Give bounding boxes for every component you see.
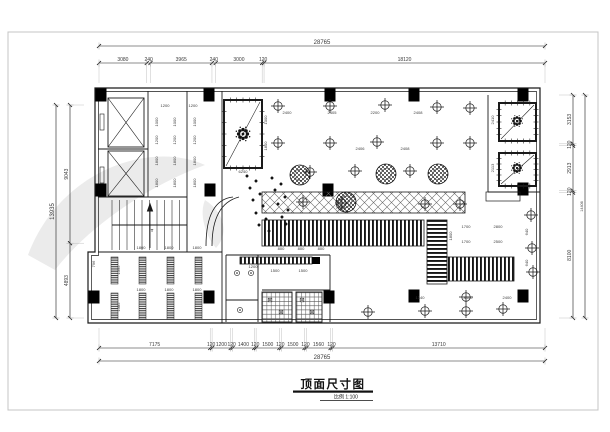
dim-text: 800 bbox=[278, 246, 285, 251]
drawing-scale: 比例 1:100 bbox=[334, 394, 358, 401]
medallion-dot bbox=[519, 173, 520, 174]
dim-text: 1700 bbox=[462, 239, 472, 244]
lamp-dot bbox=[236, 272, 238, 274]
dim-text: 1800 bbox=[165, 245, 175, 250]
ceiling-light-icon bbox=[459, 304, 473, 318]
medallion-petal bbox=[246, 132, 249, 135]
dim-text: 1800 bbox=[448, 231, 453, 241]
dim-text: 120 bbox=[301, 342, 310, 348]
ceiling-light-icon bbox=[271, 136, 285, 150]
column bbox=[96, 89, 107, 102]
dim-text: 120 bbox=[567, 187, 573, 196]
dim-text: 1000 bbox=[263, 115, 268, 125]
medallion-petal bbox=[513, 164, 516, 167]
dim-text: 2400 bbox=[503, 295, 513, 300]
dim-text: 1385 bbox=[116, 302, 121, 312]
medallion-petal bbox=[519, 120, 522, 123]
louver-band bbox=[240, 257, 312, 264]
dim-text: 1340 bbox=[416, 295, 426, 300]
medallion-dot bbox=[519, 126, 520, 127]
medallion-petal bbox=[238, 129, 241, 132]
dim-text: 2400 bbox=[283, 110, 293, 115]
ceiling-medallion bbox=[511, 162, 523, 174]
medallion-petal bbox=[518, 122, 521, 125]
spotlight-icon bbox=[270, 176, 274, 180]
dim-text: 18120 bbox=[398, 57, 412, 63]
medallion-petal bbox=[516, 170, 519, 173]
dim-text: 1200 bbox=[216, 342, 227, 348]
medallion-petal bbox=[516, 123, 519, 126]
dim-text: 1500 bbox=[271, 268, 281, 273]
column bbox=[518, 89, 529, 102]
dim-text: 1800 bbox=[154, 156, 159, 166]
column bbox=[96, 184, 107, 197]
medallion-dot bbox=[511, 170, 512, 171]
medallion-center bbox=[516, 167, 518, 169]
dim-text: 1200 bbox=[154, 135, 159, 145]
lamp-dot bbox=[280, 311, 282, 313]
grid-ceiling-rooms bbox=[234, 270, 322, 322]
hatched-circle-feature bbox=[428, 164, 448, 184]
medallion-dot bbox=[236, 131, 237, 132]
spotlight-icon bbox=[257, 223, 261, 227]
drawing-title: 顶面尺寸图 bbox=[301, 377, 366, 391]
dim-text: 3080 bbox=[117, 57, 128, 63]
dim-text: 120 bbox=[251, 342, 260, 348]
dim-text: 7340 bbox=[336, 205, 346, 210]
medallion-petal bbox=[518, 164, 521, 167]
dim-text: 640 bbox=[524, 259, 529, 266]
spotlight-icon bbox=[254, 179, 258, 183]
dim-text: 120 bbox=[259, 57, 268, 63]
medallion-dot bbox=[519, 115, 520, 116]
ceiling-light-icon bbox=[463, 101, 477, 115]
medallion-dot bbox=[519, 162, 520, 163]
light-trough bbox=[167, 257, 174, 284]
medallion-petal bbox=[237, 132, 240, 135]
medallion-dot bbox=[245, 140, 246, 141]
dim-text: 7175 bbox=[149, 342, 160, 348]
dim-text: 1800 bbox=[193, 287, 203, 292]
medallion-dot bbox=[511, 123, 512, 124]
medallion-dot bbox=[514, 126, 515, 127]
dim-text: 2200 bbox=[371, 110, 381, 115]
dim-text: 796 bbox=[91, 260, 96, 267]
dim-text: 240 bbox=[210, 57, 219, 63]
lamp-dot bbox=[311, 311, 313, 313]
medallion-dot bbox=[522, 170, 523, 171]
dim-text: 1200 bbox=[192, 135, 197, 145]
medallion-petal bbox=[513, 122, 516, 125]
dim-text: 1560 bbox=[313, 342, 324, 348]
medallion-petal bbox=[512, 120, 515, 123]
light-trough-bars bbox=[111, 257, 202, 319]
medallion-petal bbox=[244, 129, 247, 132]
dim-text: 2405 bbox=[328, 110, 338, 115]
light-trough bbox=[195, 257, 202, 284]
medallion-dot bbox=[514, 162, 515, 163]
dim-text: 1200 bbox=[161, 103, 171, 108]
grid-ceiling bbox=[262, 292, 292, 322]
ceiling-light-icon bbox=[463, 136, 477, 150]
medallion-petal bbox=[516, 163, 519, 166]
medallion-dot bbox=[514, 115, 515, 116]
column bbox=[518, 183, 529, 196]
ceiling-light-icon bbox=[361, 305, 375, 319]
medallion-petal bbox=[513, 117, 516, 120]
dim-text: 800 bbox=[298, 246, 305, 251]
medallion-dot bbox=[249, 131, 250, 132]
dim-text: 120 bbox=[327, 342, 336, 348]
column bbox=[518, 290, 529, 303]
ceiling-light-icon bbox=[524, 208, 538, 222]
medallion-dot bbox=[236, 136, 237, 137]
dim-text: 1800 bbox=[137, 245, 147, 250]
medallion-dot bbox=[522, 165, 523, 166]
lamp-dot bbox=[269, 299, 271, 301]
ceiling-light-icon bbox=[323, 136, 337, 150]
spotlight-icon bbox=[273, 188, 277, 192]
dim-text: 2408 bbox=[401, 146, 411, 151]
light-trough bbox=[139, 293, 146, 319]
dim-text: 3000 bbox=[233, 57, 244, 63]
dim-text: 1800 bbox=[172, 156, 177, 166]
dim-text: 1500 bbox=[262, 342, 273, 348]
ceiling-light-icon bbox=[348, 164, 362, 178]
dim-text: 14406 bbox=[580, 201, 584, 212]
dim-text: 1200 bbox=[172, 135, 177, 145]
dim-text: 3965 bbox=[176, 57, 187, 63]
medallion-dot bbox=[511, 118, 512, 119]
medallion-petal bbox=[241, 128, 244, 131]
lattice-band bbox=[262, 192, 465, 213]
title-underline-thick-rule bbox=[293, 391, 373, 393]
medallion-dot bbox=[511, 165, 512, 166]
dim-text: 13935 bbox=[50, 202, 56, 219]
dim-text: 2113 bbox=[490, 163, 495, 172]
ceiling-light-icon bbox=[430, 100, 444, 114]
dim-text: 1000 bbox=[154, 117, 159, 127]
medallion-petal bbox=[241, 137, 244, 140]
medallion-petal bbox=[518, 117, 521, 120]
light-trough bbox=[195, 293, 202, 319]
spotlight-icon bbox=[248, 186, 252, 190]
dim-text: 2408 bbox=[414, 110, 424, 115]
ceiling-light-icon bbox=[378, 98, 392, 112]
ceiling-light-icon bbox=[525, 241, 539, 255]
dim-text: 28765 bbox=[314, 40, 331, 46]
medallion-dot bbox=[522, 118, 523, 119]
dim-text: 1800 bbox=[137, 287, 147, 292]
dim-text: 1800 bbox=[193, 245, 203, 250]
stair-direction-arrow bbox=[148, 204, 153, 211]
dim-text: 1800 bbox=[165, 287, 175, 292]
grid-ceiling bbox=[296, 292, 322, 322]
lamp-dot bbox=[239, 309, 241, 311]
title-block: 顶面尺寸图 比例 1:100 bbox=[293, 377, 373, 401]
line bbox=[501, 155, 534, 184]
dim-text: 1500 bbox=[299, 268, 309, 273]
ceiling-light-icon bbox=[370, 135, 384, 149]
spotlight-icon bbox=[251, 198, 255, 202]
louver-band bbox=[447, 257, 514, 281]
ceiling-light-icon bbox=[403, 164, 417, 178]
spotlight-icon bbox=[254, 211, 258, 215]
dim-text: 2406 bbox=[356, 146, 366, 151]
medallion-petal bbox=[518, 169, 521, 172]
ceiling-light-icon bbox=[430, 136, 444, 150]
spotlight-icon bbox=[280, 215, 284, 219]
dim-text: 1800 bbox=[192, 178, 197, 188]
dim-text: 1800 bbox=[154, 178, 159, 188]
elevator-door bbox=[100, 114, 104, 130]
spotlight-icon bbox=[279, 182, 283, 186]
dim-text: 1800 bbox=[172, 178, 177, 188]
shelf bbox=[486, 192, 520, 201]
dim-text: 6240 bbox=[239, 169, 249, 174]
column bbox=[324, 291, 335, 304]
dim-text: 1000 bbox=[192, 117, 197, 127]
dim-text: 1395 bbox=[116, 265, 121, 275]
medallion-dot bbox=[522, 123, 523, 124]
medallion-dot bbox=[240, 127, 241, 128]
dim-text: 1000 bbox=[172, 117, 177, 127]
dim-text: 640 bbox=[524, 228, 529, 235]
spotlight-icon bbox=[258, 192, 262, 196]
black-box bbox=[312, 257, 320, 264]
dim-text: T bbox=[151, 228, 154, 233]
medallion-petal bbox=[244, 135, 247, 138]
dim-text: 120 bbox=[567, 140, 573, 149]
ceiling-plan-drawing: 2876530802403965240300012018120717512012… bbox=[0, 0, 610, 432]
louver-band bbox=[427, 220, 447, 284]
light-trough bbox=[139, 257, 146, 284]
dim-text: 1200 bbox=[189, 103, 199, 108]
dim-text: 4893 bbox=[64, 275, 70, 286]
medallion-petal bbox=[519, 167, 522, 170]
hatched-circle-feature bbox=[290, 165, 310, 185]
dim-text: 1800 bbox=[263, 141, 268, 151]
medallion-petal bbox=[512, 167, 515, 170]
dim-text: 120 bbox=[227, 342, 236, 348]
dim-text: 1400 bbox=[238, 342, 249, 348]
ceiling-medallion bbox=[511, 115, 523, 127]
dim-text: 2500 bbox=[494, 239, 504, 244]
column bbox=[204, 291, 215, 304]
medallion-center bbox=[516, 120, 518, 122]
medallion-dot bbox=[249, 136, 250, 137]
lamp-dot bbox=[301, 299, 303, 301]
light-trough bbox=[167, 293, 174, 319]
dim-text: 8400 bbox=[464, 295, 474, 300]
dim-text: 2913 bbox=[567, 162, 573, 173]
dim-text: 1200 bbox=[249, 264, 259, 269]
ceiling-light-icon bbox=[418, 304, 432, 318]
dim-text: 120 bbox=[276, 342, 285, 348]
ceiling-medallion bbox=[236, 127, 251, 142]
ceiling-bands bbox=[240, 192, 520, 284]
dim-text: 8100 bbox=[567, 250, 573, 261]
dim-text: 2800 bbox=[494, 224, 504, 229]
medallion-petal bbox=[513, 169, 516, 172]
medallion-dot bbox=[245, 127, 246, 128]
dim-text: 1500 bbox=[287, 342, 298, 348]
dim-text: 1700 bbox=[462, 224, 472, 229]
dim-text: 9043 bbox=[64, 168, 70, 179]
lamp-dot bbox=[250, 272, 252, 274]
column bbox=[409, 89, 420, 102]
medallion-petal bbox=[516, 116, 519, 119]
dim-text: 28765 bbox=[314, 355, 331, 361]
column bbox=[205, 184, 216, 197]
column bbox=[89, 291, 100, 304]
dim-text: 3153 bbox=[567, 114, 573, 125]
medallion-center bbox=[242, 133, 245, 136]
dim-text: 2410 bbox=[490, 115, 495, 125]
spotlight-icon bbox=[245, 174, 249, 178]
hatched-circle-feature bbox=[376, 164, 396, 184]
ceiling-light-icon bbox=[496, 302, 510, 316]
dim-text: 240 bbox=[144, 57, 153, 63]
dim-text: 13710 bbox=[432, 342, 446, 348]
medallion-dot bbox=[240, 140, 241, 141]
dim-text: 1800 bbox=[192, 156, 197, 166]
column bbox=[204, 89, 215, 102]
medallion-dot bbox=[514, 173, 515, 174]
dim-text: 800 bbox=[318, 246, 325, 251]
dim-text: 120 bbox=[207, 342, 216, 348]
medallion-petal bbox=[238, 135, 241, 138]
